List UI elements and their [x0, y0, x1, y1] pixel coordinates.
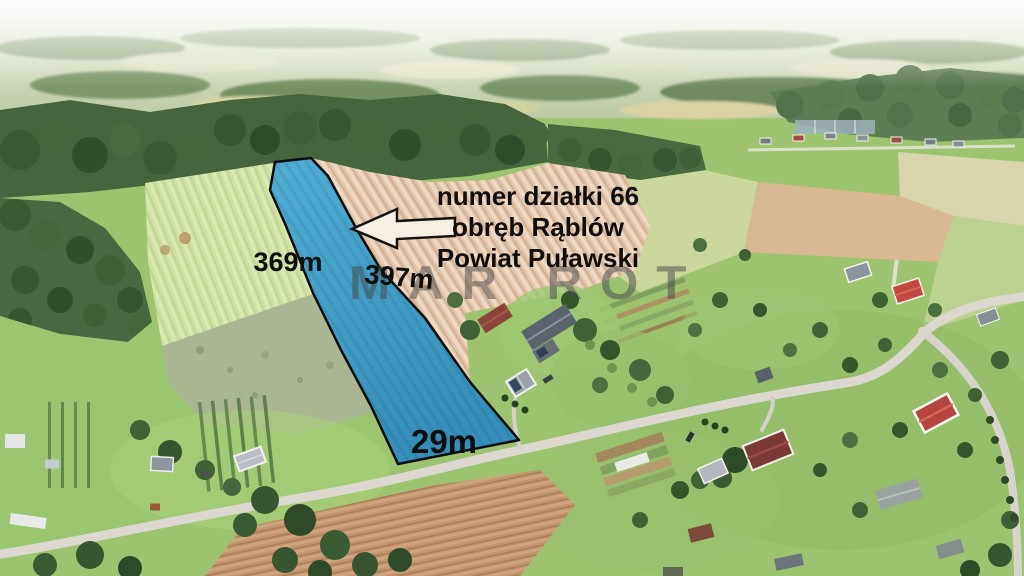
dimension-label-left: 369m: [253, 247, 322, 278]
county-line: Powiat Puławski: [437, 243, 639, 274]
plot-info-text: numer działki 66 obręb Rąblów Powiat Puł…: [437, 181, 639, 274]
dimension-label-right: 397m: [363, 259, 435, 296]
haze-overlay: [0, 0, 1024, 88]
plot-number-line: numer działki 66: [437, 181, 639, 212]
aerial-photo: MAR ROT numer działki 66 obręb Rąblów Po…: [0, 0, 1024, 576]
dimension-label-bottom: 29m: [411, 423, 477, 461]
district-line: obręb Rąblów: [437, 212, 639, 243]
